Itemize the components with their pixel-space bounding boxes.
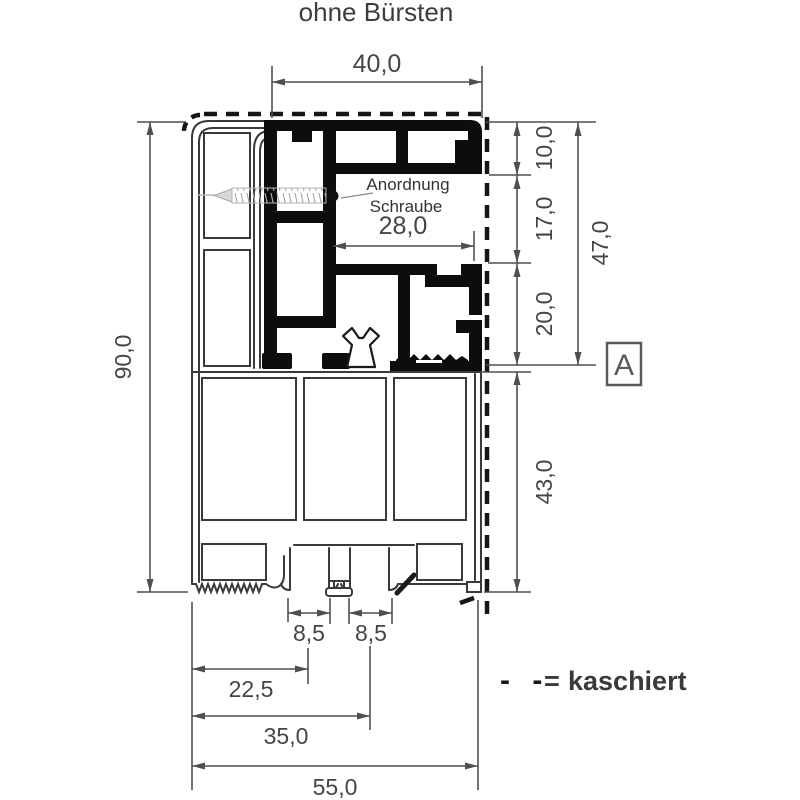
profile-drawing: ohne Bürsten bbox=[0, 0, 800, 800]
arrowhead bbox=[514, 372, 521, 385]
arrowhead bbox=[514, 176, 521, 189]
arrowhead bbox=[514, 579, 521, 592]
black-top-tab bbox=[292, 131, 312, 142]
black-foot-left bbox=[262, 353, 292, 369]
black-foot-mid bbox=[322, 353, 350, 369]
arrowhead bbox=[272, 79, 285, 86]
arrowhead bbox=[147, 579, 154, 592]
bottom-chamber-left bbox=[202, 544, 266, 580]
annotation-line-1: Anordnung bbox=[366, 175, 449, 194]
bottom-chamber-right bbox=[417, 544, 462, 580]
extension-line bbox=[137, 122, 188, 592]
black-lower-bar bbox=[323, 264, 437, 275]
left-chamber-middle bbox=[204, 250, 250, 366]
dim-right-stack bbox=[480, 122, 596, 592]
groove-right-wall-2 bbox=[389, 548, 398, 590]
arrowhead bbox=[514, 264, 521, 277]
arrowhead bbox=[317, 610, 330, 617]
screw-point-dot bbox=[328, 191, 339, 202]
dim-label-90: 90,0 bbox=[110, 335, 136, 380]
black-mid-wall bbox=[323, 131, 336, 321]
arrowhead bbox=[461, 243, 474, 250]
kaschiert-legend: - - = kaschiert bbox=[500, 664, 687, 697]
legend-equals: = bbox=[544, 666, 560, 696]
dim-label-28: 28,0 bbox=[379, 212, 428, 240]
arrowhead bbox=[575, 123, 582, 136]
black-right-tab bbox=[461, 264, 482, 276]
arrowhead bbox=[469, 79, 482, 86]
black-top-divider-wall bbox=[396, 131, 408, 163]
dim-label-47: 47,0 bbox=[587, 221, 613, 266]
dim-left-height bbox=[137, 122, 188, 592]
black-inner-wall-low bbox=[398, 275, 410, 363]
black-lower-step bbox=[425, 275, 482, 287]
groove-right-wall-1 bbox=[341, 548, 350, 590]
arrowhead bbox=[192, 666, 205, 673]
dim-label-10: 10,0 bbox=[531, 126, 557, 171]
dim-label-17: 17,0 bbox=[531, 197, 557, 242]
left-chamber-top bbox=[204, 133, 250, 238]
dim-label-20: 20,0 bbox=[531, 292, 557, 337]
arrowhead bbox=[192, 713, 205, 720]
drawing-title: ohne Bürsten bbox=[299, 0, 454, 27]
black-chamber-bar bbox=[264, 211, 336, 223]
arrowhead bbox=[465, 763, 478, 770]
arrowhead bbox=[514, 250, 521, 263]
arrowhead bbox=[192, 763, 205, 770]
legend-label: kaschiert bbox=[568, 666, 687, 696]
black-upper-step bbox=[455, 140, 482, 163]
big-chamber-left bbox=[202, 378, 296, 520]
snap-clip bbox=[343, 328, 379, 367]
black-upper-floor bbox=[323, 163, 482, 174]
annotation-line-2: Schraube bbox=[370, 197, 443, 216]
dim-label-22-5: 22,5 bbox=[229, 676, 274, 702]
arrowhead bbox=[514, 352, 521, 365]
arrowhead bbox=[288, 610, 301, 617]
black-section-notch bbox=[443, 152, 455, 163]
dim-label-35: 35,0 bbox=[264, 723, 309, 749]
dim-label-top-width: 40,0 bbox=[353, 50, 402, 78]
arrowhead bbox=[379, 610, 392, 617]
arrowhead bbox=[147, 122, 154, 135]
profile-right-foot bbox=[467, 582, 481, 592]
arrowhead bbox=[514, 123, 521, 136]
big-chamber-middle bbox=[304, 378, 386, 520]
black-right-hook bbox=[456, 320, 482, 333]
kaschiert-bottom-dash bbox=[460, 598, 474, 603]
arrowhead bbox=[514, 162, 521, 175]
arrowhead bbox=[295, 666, 308, 673]
arrowhead bbox=[349, 610, 362, 617]
arrowhead bbox=[357, 713, 370, 720]
black-right-wall-low bbox=[469, 287, 482, 315]
black-right-wall-bottom bbox=[469, 333, 482, 363]
dim-label-55: 55,0 bbox=[313, 774, 358, 800]
gasket-slit bbox=[416, 360, 442, 363]
big-chamber-right bbox=[394, 378, 466, 520]
t-foot-base bbox=[326, 588, 352, 596]
detail-marker-letter: A bbox=[614, 349, 634, 382]
screw-annotation: Anordnung Schraube bbox=[341, 175, 450, 216]
detail-marker-box: A bbox=[607, 343, 641, 385]
black-chamber-bottom-bar bbox=[264, 316, 336, 328]
black-top-bar bbox=[264, 120, 468, 131]
screw-shank bbox=[232, 188, 326, 203]
dim-label-8-5-right: 8,5 bbox=[355, 620, 387, 646]
dim-label-8-5-left: 8,5 bbox=[293, 620, 325, 646]
arrowhead bbox=[575, 352, 582, 365]
legend-dash-symbol: - - bbox=[500, 664, 549, 697]
dim-label-43: 43,0 bbox=[531, 460, 557, 505]
